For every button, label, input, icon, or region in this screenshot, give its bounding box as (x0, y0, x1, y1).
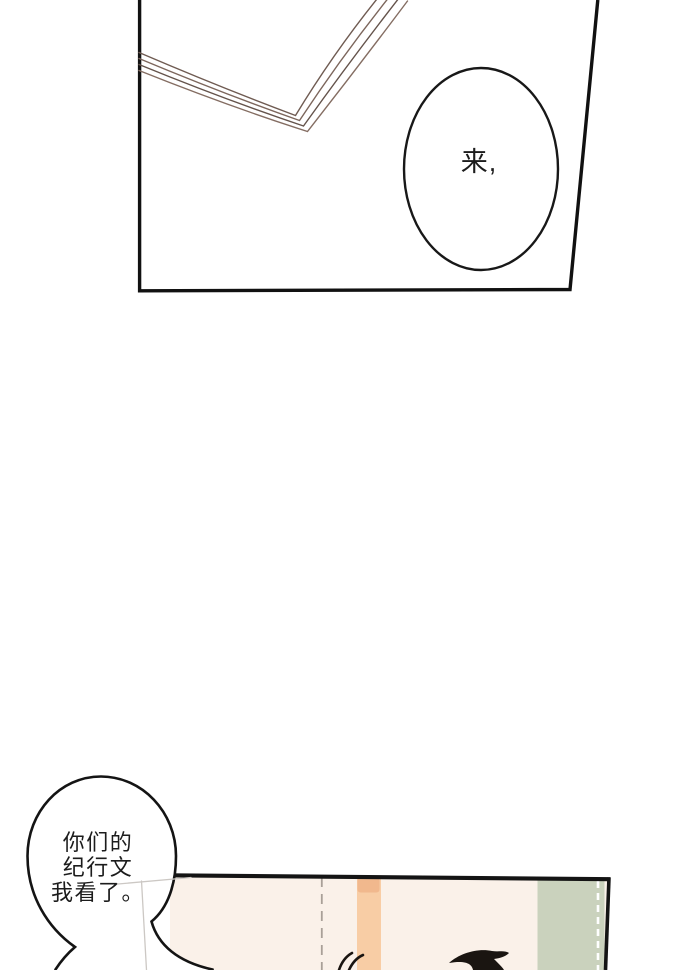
artwork-layer (0, 0, 690, 970)
webtoon-page: 来, 你们的 纪行文 我看了。 (0, 0, 690, 970)
top-speech-bubble (404, 68, 558, 270)
green-wall-strip (538, 878, 605, 970)
peach-pillar-top-shade (358, 878, 380, 893)
